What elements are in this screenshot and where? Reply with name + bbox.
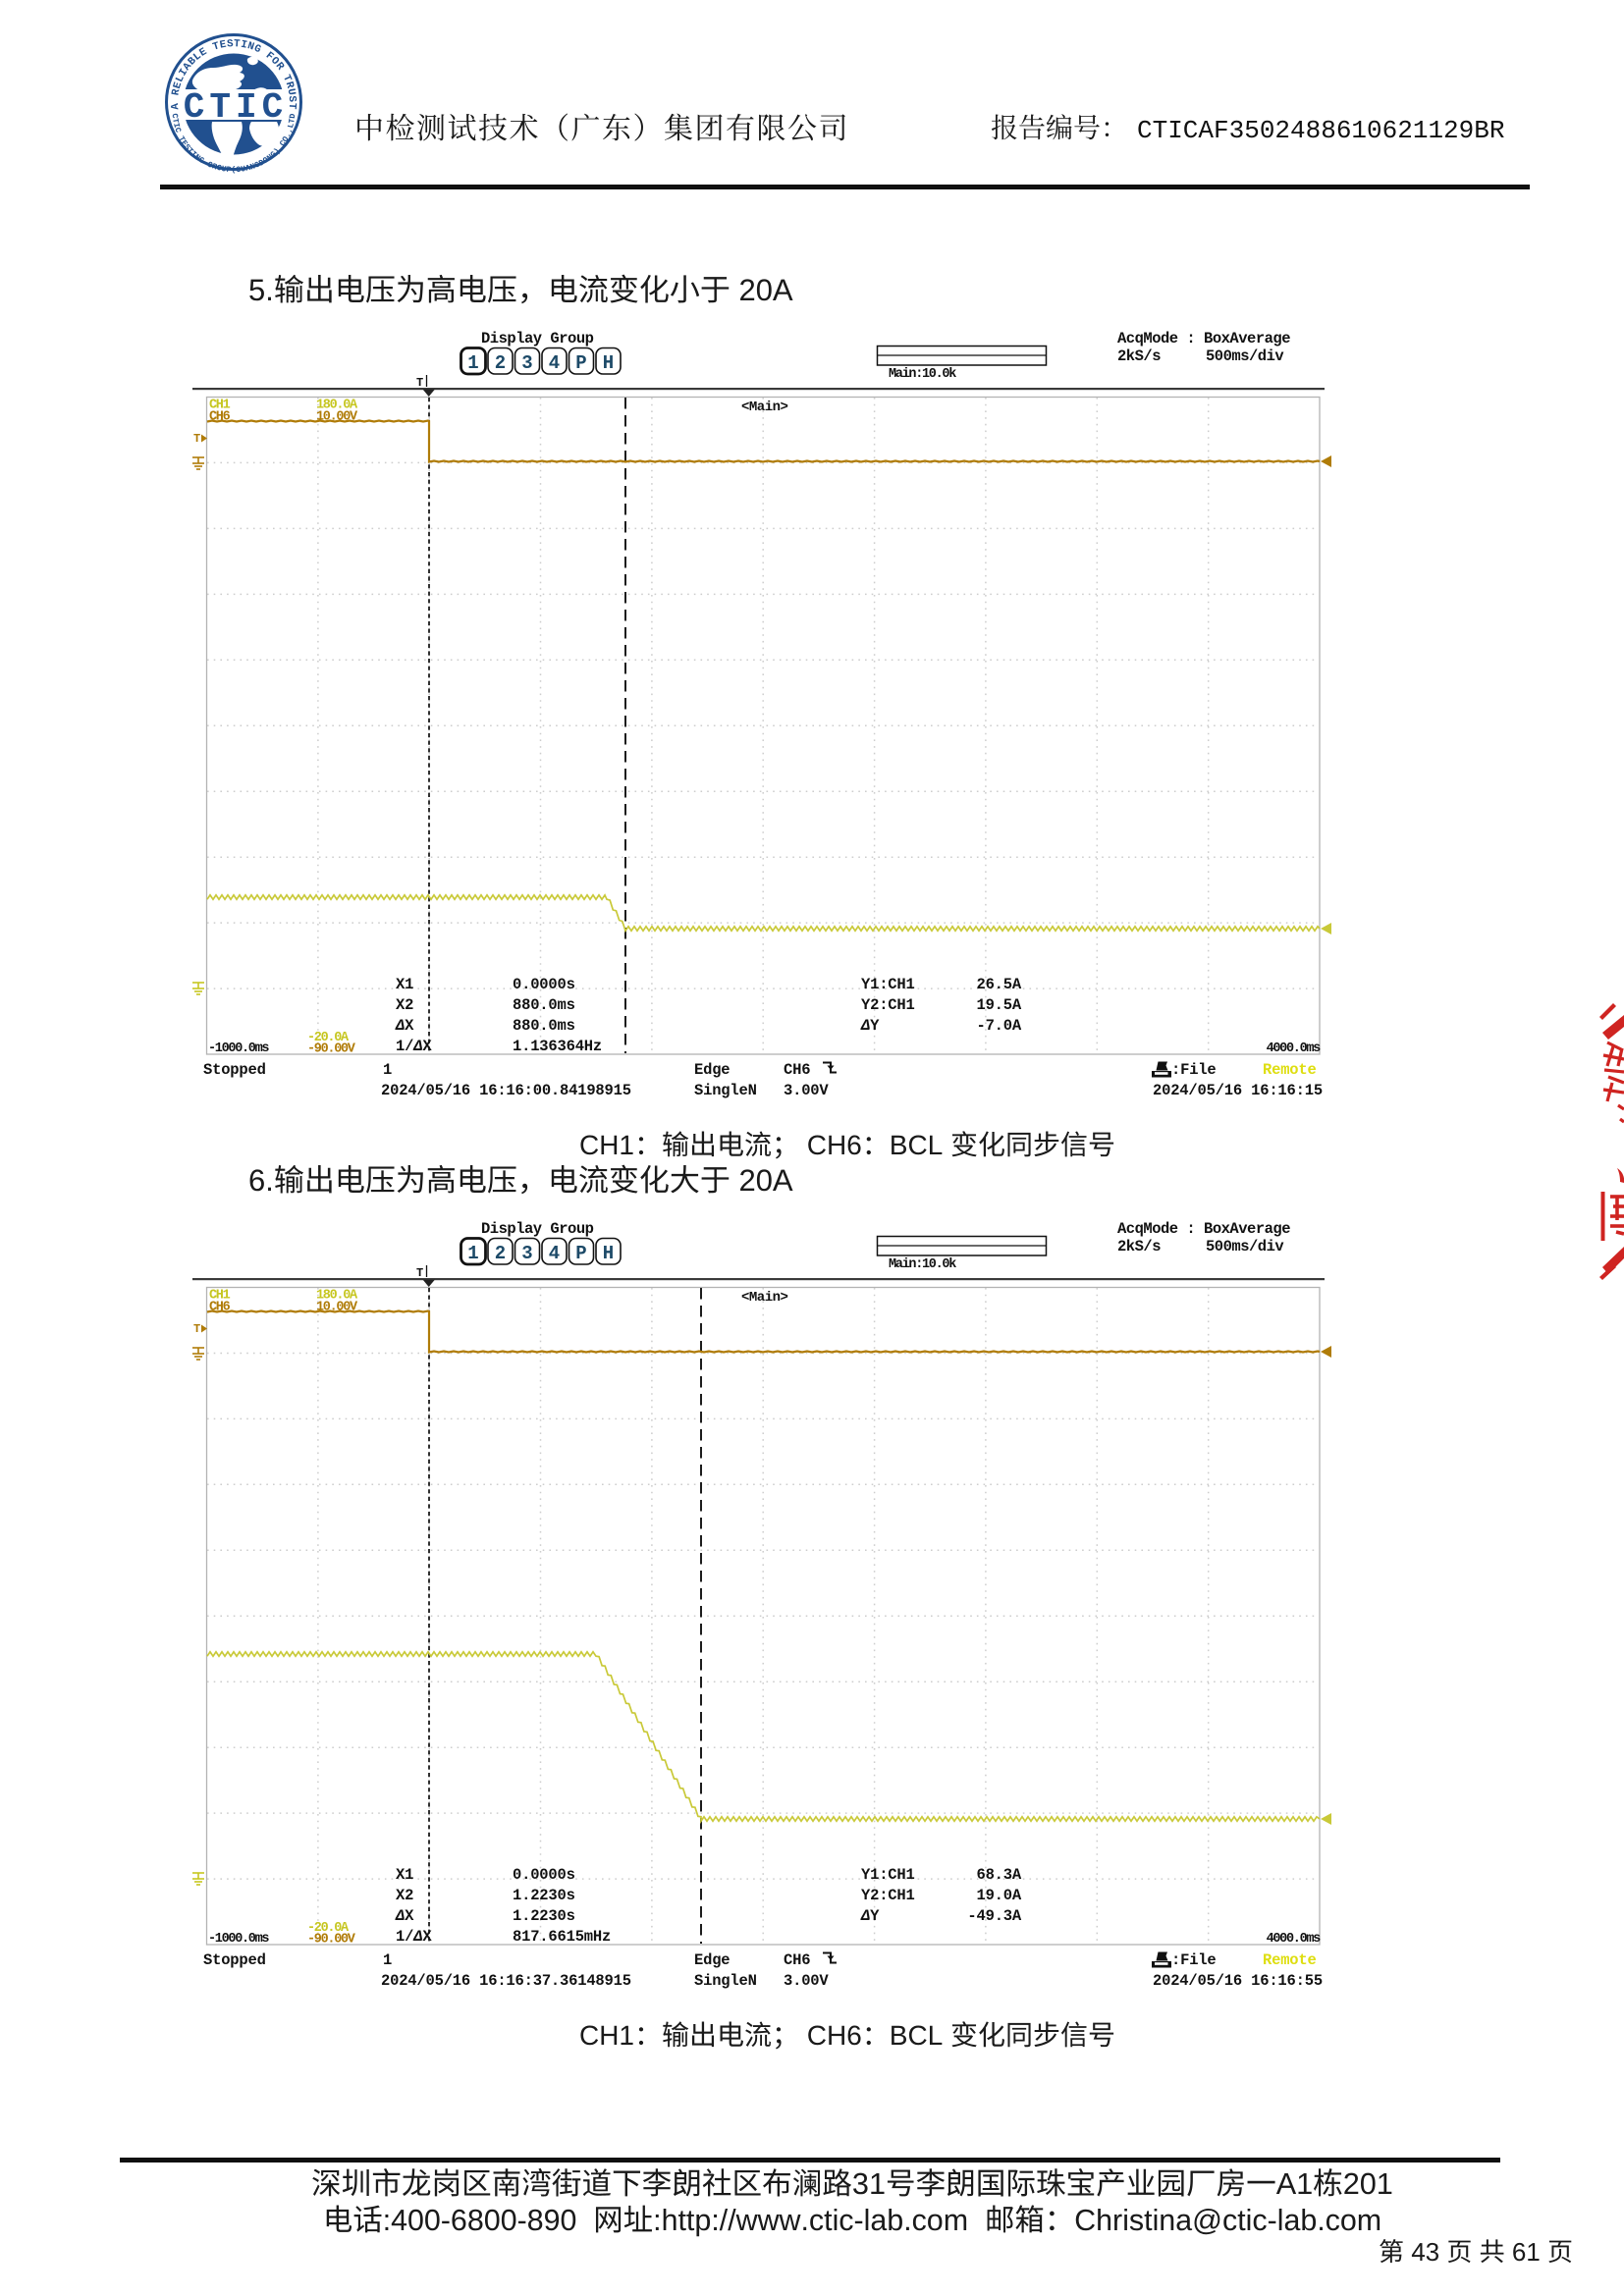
svg-text:1.2230s: 1.2230s: [513, 1907, 575, 1925]
svg-text:ΔX: ΔX: [395, 1017, 414, 1035]
svg-text:-49.3A: -49.3A: [967, 1907, 1022, 1925]
svg-text:X1: X1: [396, 1866, 413, 1884]
svg-text:1: 1: [467, 1243, 478, 1264]
svg-text:Remote: Remote: [1263, 1061, 1317, 1079]
svg-text:X2: X2: [396, 996, 413, 1014]
svg-text:Edge: Edge: [694, 1061, 730, 1079]
svg-text:19.0A: 19.0A: [976, 1887, 1021, 1904]
svg-text:817.6615mHz: 817.6615mHz: [513, 1928, 611, 1946]
svg-text:CH6: CH6: [784, 1061, 810, 1079]
svg-text:-7.0A: -7.0A: [976, 1017, 1021, 1035]
svg-text:2024/05/16 16:16:15: 2024/05/16 16:16:15: [1153, 1082, 1323, 1099]
svg-text:ΔX: ΔX: [395, 1907, 414, 1925]
svg-text:H: H: [603, 1243, 614, 1264]
svg-text:500ms/div: 500ms/div: [1206, 347, 1284, 365]
svg-text:ΔY: ΔY: [860, 1907, 880, 1925]
svg-text:10.00V: 10.00V: [316, 1301, 358, 1315]
svg-text:P: P: [575, 1243, 586, 1264]
svg-text:<Main>: <Main>: [741, 1290, 788, 1306]
svg-text:AcqMode : BoxAverage: AcqMode : BoxAverage: [1117, 1220, 1290, 1238]
svg-text:2kS/s: 2kS/s: [1117, 1238, 1161, 1255]
svg-text:Stopped: Stopped: [203, 1061, 266, 1079]
svg-text:-1000.0ms: -1000.0ms: [208, 1932, 269, 1947]
svg-text:<Main>: <Main>: [741, 400, 788, 415]
svg-text:10.00V: 10.00V: [316, 410, 358, 425]
svg-text:CTICAF3502488610621129BR: CTICAF3502488610621129BR: [1137, 116, 1504, 145]
svg-text:T: T: [193, 1322, 200, 1336]
svg-text:2: 2: [495, 1243, 506, 1264]
svg-text:2024/05/16 16:16:37.36148915: 2024/05/16 16:16:37.36148915: [381, 1972, 631, 1990]
svg-text:500ms/div: 500ms/div: [1206, 1238, 1284, 1255]
svg-text:SingleN: SingleN: [694, 1972, 757, 1990]
svg-text:0.0000s: 0.0000s: [513, 1866, 575, 1884]
svg-text:P: P: [575, 352, 586, 374]
svg-text:880.0ms: 880.0ms: [513, 1017, 575, 1035]
svg-text:Display Group: Display Group: [481, 330, 594, 347]
svg-text:68.3A: 68.3A: [976, 1866, 1021, 1884]
svg-text:880.0ms: 880.0ms: [513, 996, 575, 1014]
svg-text:4000.0ms: 4000.0ms: [1267, 1932, 1322, 1947]
svg-text:3: 3: [521, 352, 532, 374]
svg-text:H: H: [603, 352, 614, 374]
svg-text:1: 1: [467, 352, 478, 374]
svg-text:Y2:CH1: Y2:CH1: [861, 996, 915, 1014]
svg-text:Main:10.0k: Main:10.0k: [889, 367, 956, 382]
svg-text:0.0000s: 0.0000s: [513, 976, 575, 993]
svg-text:3.00V: 3.00V: [784, 1082, 829, 1099]
svg-text:Remote: Remote: [1263, 1951, 1317, 1969]
svg-text::File: :File: [1171, 1951, 1217, 1969]
svg-text:CH6: CH6: [784, 1951, 810, 1969]
svg-text:T: T: [416, 376, 423, 390]
svg-text:CTIC: CTIC: [184, 87, 288, 128]
svg-text:4: 4: [549, 352, 560, 374]
svg-text:1: 1: [383, 1951, 392, 1969]
svg-text:-90.00V: -90.00V: [307, 1933, 356, 1948]
svg-text:X2: X2: [396, 1887, 413, 1904]
svg-text:Y1:CH1: Y1:CH1: [861, 976, 915, 993]
svg-text:1/ΔX: 1/ΔX: [396, 1038, 432, 1055]
svg-text:Stopped: Stopped: [203, 1951, 266, 1969]
svg-text:Y1:CH1: Y1:CH1: [861, 1866, 915, 1884]
svg-text:19.5A: 19.5A: [976, 996, 1021, 1014]
svg-text:2024/05/16 16:16:55: 2024/05/16 16:16:55: [1153, 1972, 1323, 1990]
svg-text:Edge: Edge: [694, 1951, 730, 1969]
svg-text:4000.0ms: 4000.0ms: [1267, 1041, 1322, 1056]
svg-text:-90.00V: -90.00V: [307, 1042, 356, 1057]
svg-text:1.136364Hz: 1.136364Hz: [513, 1038, 602, 1055]
svg-text:ΔY: ΔY: [860, 1017, 880, 1035]
svg-text:SingleN: SingleN: [694, 1082, 757, 1099]
svg-text:-1000.0ms: -1000.0ms: [208, 1041, 269, 1056]
svg-text:2: 2: [495, 352, 506, 374]
svg-text:4: 4: [549, 1243, 560, 1264]
svg-text::File: :File: [1171, 1061, 1217, 1079]
svg-text:1/ΔX: 1/ΔX: [396, 1928, 432, 1946]
svg-text:26.5A: 26.5A: [976, 976, 1021, 993]
svg-text:3.00V: 3.00V: [784, 1972, 829, 1990]
svg-text:Y2:CH1: Y2:CH1: [861, 1887, 915, 1904]
svg-text:X1: X1: [396, 976, 413, 993]
svg-text:3: 3: [521, 1243, 532, 1264]
svg-text:Display Group: Display Group: [481, 1220, 594, 1238]
svg-text:1: 1: [383, 1061, 392, 1079]
svg-text:Main:10.0k: Main:10.0k: [889, 1257, 956, 1272]
svg-text:2024/05/16 16:16:00.84198915: 2024/05/16 16:16:00.84198915: [381, 1082, 631, 1099]
svg-text:T: T: [193, 432, 200, 446]
svg-text:AcqMode : BoxAverage: AcqMode : BoxAverage: [1117, 330, 1290, 347]
svg-text:T: T: [416, 1266, 423, 1280]
svg-text:2kS/s: 2kS/s: [1117, 347, 1161, 365]
svg-text:1.2230s: 1.2230s: [513, 1887, 575, 1904]
